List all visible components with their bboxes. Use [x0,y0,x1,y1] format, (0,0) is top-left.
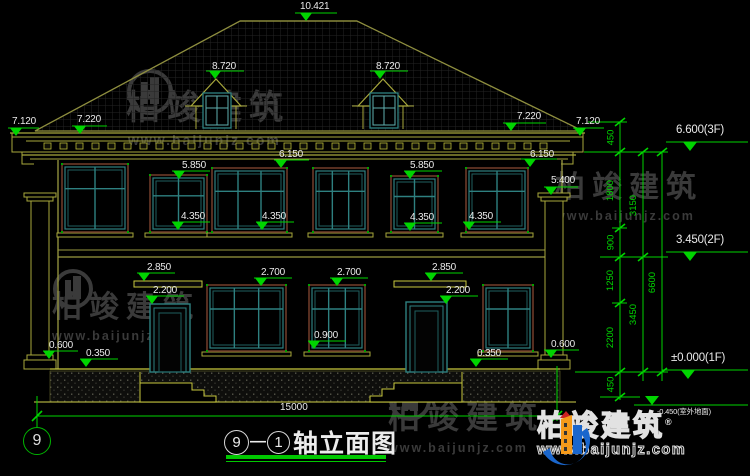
windows-and-doors [57,163,538,372]
title-underline-thick [226,455,386,459]
window [386,175,443,237]
entrance-door [406,302,447,372]
brand-logo: 柏竣建筑® www.baijunjz.com [533,406,749,472]
title-underline-thin [226,461,386,462]
pilaster-right [538,193,570,369]
cad-elevation-drawing: 柏竣建筑 www.baijunjz.com 柏竣建筑 www.baijunjz.… [0,0,750,476]
canopy-left [134,281,202,287]
overall-width-dimension: 15000 [280,402,308,413]
window [478,284,538,356]
window [202,284,291,356]
title-axis-bubble-1: 1 [267,431,290,454]
brand-logo-icon [533,406,593,468]
window [461,167,533,237]
title-dash: — [250,433,266,451]
dentil-band [44,143,547,149]
eave-cornice [10,133,585,164]
window [207,167,292,237]
registered-mark: ® [665,417,675,427]
pilaster-left [24,193,56,369]
axis-bubble-9: 9 [23,427,51,455]
entrance-door [150,304,190,372]
window [57,163,133,237]
title-axis-bubble-9: 9 [224,430,249,455]
canopy-right [394,281,466,287]
roof [35,21,583,131]
plinth [34,369,576,402]
window [308,167,373,237]
elevation-linework [0,0,750,476]
